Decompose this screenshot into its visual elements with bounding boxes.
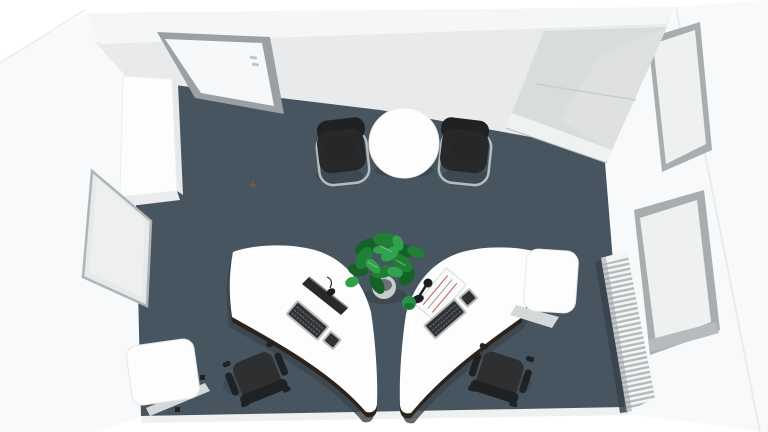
- chair-seat-shade: [450, 137, 482, 161]
- room-render-viewport[interactable]: [0, 0, 768, 432]
- render-stage: [0, 0, 768, 432]
- meeting-table[interactable]: [369, 108, 439, 178]
- storage-box-foot: [200, 375, 205, 380]
- storage-box-top: [125, 338, 201, 407]
- desk-plant-ball-shade: [404, 303, 414, 309]
- chair-seat-shade: [324, 137, 356, 161]
- wardrobe-left[interactable]: [120, 76, 183, 207]
- wardrobe-top: [120, 76, 177, 197]
- storage-cube-top: [523, 248, 579, 313]
- storage-box-foot: [175, 407, 180, 412]
